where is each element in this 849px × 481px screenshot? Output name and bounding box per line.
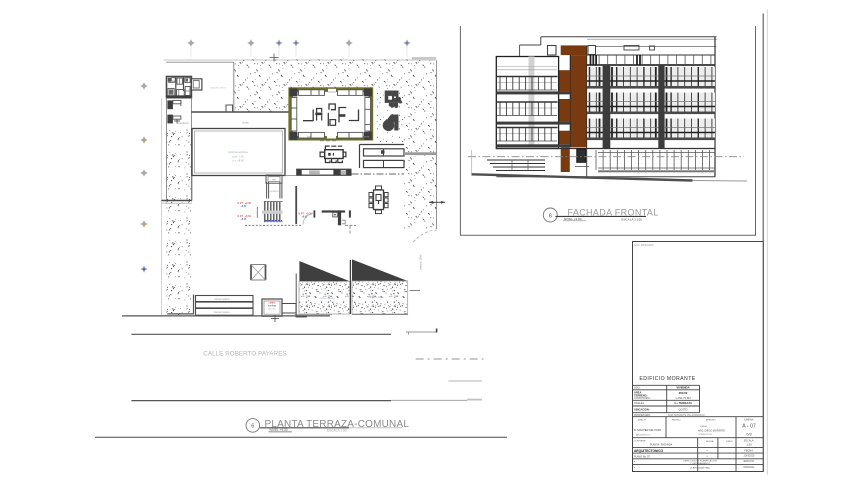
svg-text:CALLE ROBERTO PAYARES: CALLE ROBERTO PAYARES [203,351,286,358]
svg-text:NIVEL +9.00: NIVEL +9.00 [564,217,582,221]
svg-text:NIVELES:: NIVELES: [634,402,645,405]
svg-text:ESC. INDICADAS: ESC. INDICADAS [635,244,655,247]
svg-text:ARQUITECTO: ARQUITECTO [636,434,651,437]
svg-text:•: • [706,454,707,458]
svg-text:APROBO:: APROBO: [706,418,716,421]
svg-text:+8.82: +8.82 [241,206,248,208]
svg-text:R. SANCHEZ DEL POZO: R. SANCHEZ DEL POZO [634,429,661,432]
svg-text:PROPIETARIO:: PROPIETARIO: [634,414,651,417]
svg-text:rampa 15%: rampa 15% [419,254,423,270]
svg-text:DIRECCION DE PLANIFICACION: DIRECCION DE PLANIFICACION [683,460,717,463]
svg-text:A - 07: A - 07 [742,424,756,430]
svg-text:n.a. +8.60: n.a. +8.60 [232,159,244,163]
svg-text:N.P.T. +8.64: N.P.T. +8.64 [237,215,251,218]
svg-text:canto rodado: canto rodado [319,296,335,300]
svg-text:CONSTRUIDA:: CONSTRUIDA: [634,397,651,400]
svg-text:ARQ. DIEGO MORANTE: ARQ. DIEGO MORANTE [698,430,725,433]
svg-text:bombas: bombas [268,304,277,307]
svg-text:DIBUJO:: DIBUJO: [638,419,647,421]
svg-text:ARQUITECTONICO: ARQUITECTONICO [634,449,664,453]
svg-text:FACHADA FRONTAL: FACHADA FRONTAL [568,207,659,217]
svg-text:6: 6 [549,213,552,219]
svg-text:USO:: USO: [634,385,641,389]
svg-text:N.P.T. +9.00: N.P.T. +9.00 [298,213,312,216]
svg-text:ESCALA 1:100: ESCALA 1:100 [621,217,642,221]
svg-text:banca madera: banca madera [214,298,230,301]
svg-text:NIVEL +9.00: NIVEL +9.00 [270,428,288,432]
svg-text:+8.46: +8.46 [241,219,248,221]
svg-text:FECHA:: FECHA: [744,448,754,452]
svg-text:1:50: 1:50 [746,443,752,447]
svg-text:CONTIENE:: CONTIENE: [634,440,646,442]
svg-text:EDIFICIO MORANTE: EDIFICIO MORANTE [639,376,695,382]
svg-text:EDICION:: EDICION: [744,460,755,463]
svg-text:VIVIENDA: VIVIENDA [676,386,689,390]
svg-text:ORIGINAL: ORIGINAL [743,466,755,469]
svg-text:lavanderia: lavanderia [177,121,190,125]
svg-text:ESCALA:: ESCALA: [744,439,754,442]
svg-text:LAMINA:: LAMINA: [744,418,754,421]
svg-text:JUNIO: JUNIO [726,441,733,443]
svg-text:FIRMA: FIRMA [700,425,707,428]
svg-text:6: 6 [251,424,254,430]
svg-text:Y ORDENAMIENTO: Y ORDENAMIENTO [690,462,710,465]
svg-text:QUITO: QUITO [679,408,689,412]
svg-text:piscina: piscina [269,308,277,310]
svg-text:jacuzzi term.: jacuzzi term. [210,85,227,89]
svg-text:▪: ▪ [634,461,635,464]
svg-text:+8.82: +8.82 [302,217,309,219]
svg-text:N.P.T. +9.00: N.P.T. +9.00 [237,202,251,205]
svg-text:4 + TERRAZA: 4 + TERRAZA [674,401,692,405]
svg-text:piscina adultos: piscina adultos [228,150,248,154]
svg-text:REVISO:: REVISO: [672,419,681,421]
svg-text:canto rodado: canto rodado [368,295,384,299]
svg-text:1,250.75 M2: 1,250.75 M2 [675,396,691,400]
svg-text:banca madera: banca madera [214,311,230,314]
svg-text:UBICACION:: UBICACION: [634,408,650,412]
svg-text:mesa: mesa [363,136,370,139]
svg-text:escalera: escalera [269,190,279,193]
svg-text:borde: borde [242,121,249,125]
svg-text:PLANTA / FACHADA: PLANTA / FACHADA [650,443,673,446]
svg-text:ESCALA 1:50: ESCALA 1:50 [327,428,347,432]
svg-text:6/8: 6/8 [746,432,752,437]
svg-text:JUN/2015: JUN/2015 [744,455,755,458]
svg-text:FAM. MORANTE VILLAVICENCIO: FAM. MORANTE VILLAVICENCIO [668,414,705,417]
svg-text:350.00: 350.00 [679,391,688,395]
svg-text:CLAVE CATASTRAL: CLAVE CATASTRAL [690,467,711,470]
svg-text:prof. 1.40: prof. 1.40 [233,155,245,159]
svg-text:CONSULTOR: CONSULTOR [698,434,712,436]
svg-text:PLANO No. 07: PLANO No. 07 [634,455,650,458]
svg-text:▪: ▪ [634,467,635,470]
svg-text:•: • [706,448,707,452]
svg-text:FECHA:: FECHA: [706,440,714,443]
svg-text:bar: bar [307,135,311,139]
